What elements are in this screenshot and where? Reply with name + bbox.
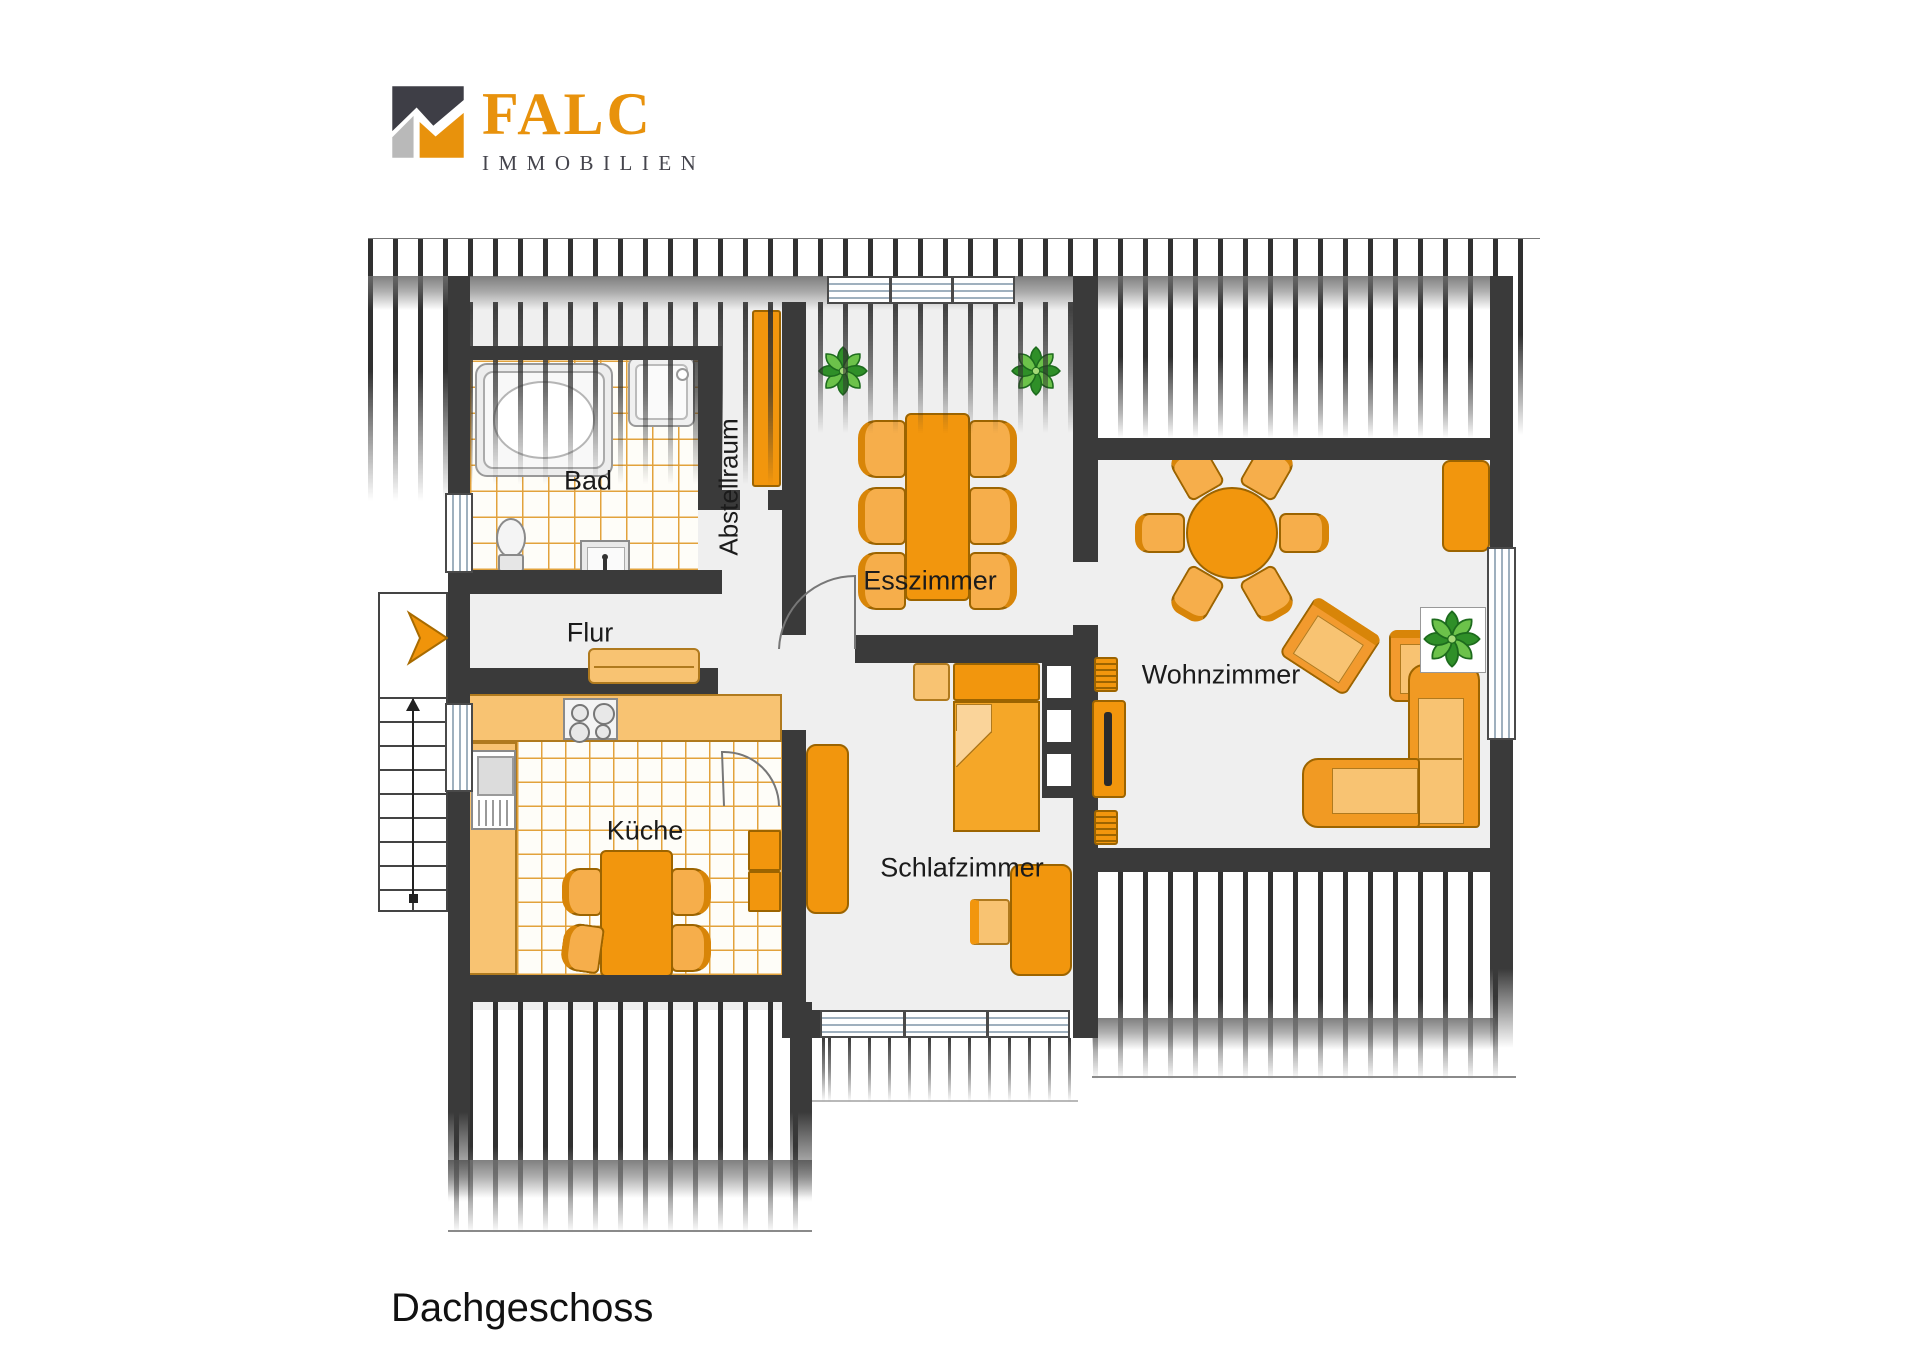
room-label-flur: Flur xyxy=(567,618,614,649)
room-label-schlafzimmer: Schlafzimmer xyxy=(880,853,1044,884)
door-swings xyxy=(0,0,1920,1357)
room-label-wohnzimmer: Wohnzimmer xyxy=(1142,660,1301,691)
room-label-bad: Bad xyxy=(564,466,612,497)
kitchen-door-arc xyxy=(722,752,779,806)
floorplan-page: FALC IMMOBILIEN xyxy=(0,0,1920,1357)
floor-title: Dachgeschoss xyxy=(391,1286,653,1331)
room-label-abstellraum: Abstellraum xyxy=(714,418,745,555)
room-label-esszimmer: Esszimmer xyxy=(863,566,997,597)
room-label-kueche: Küche xyxy=(607,816,684,847)
diningroom-door-arc xyxy=(779,576,855,649)
